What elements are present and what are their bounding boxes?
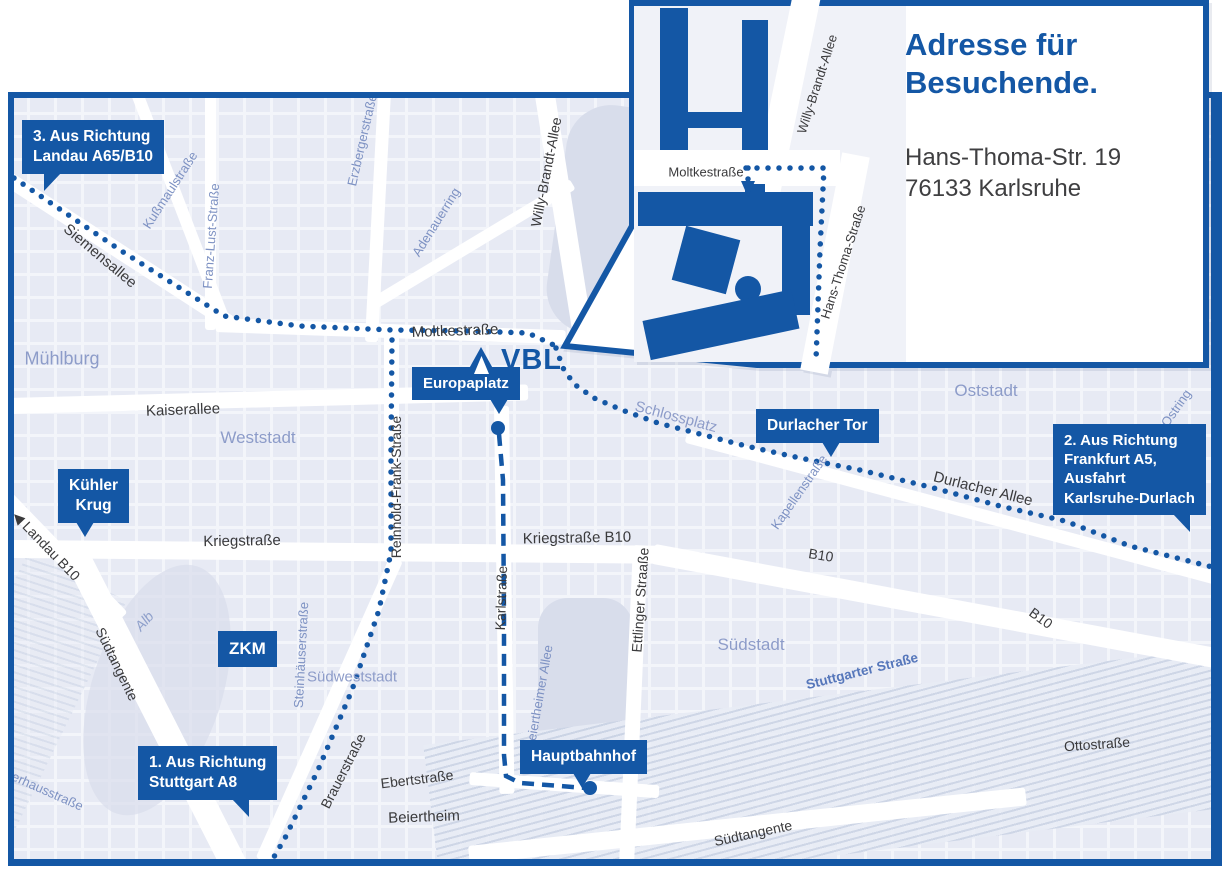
inset-title: Adresse für Besuchende. [905,26,1098,102]
visitor-address-inset: Adresse für Besuchende. Hans-Thoma-Str. … [560,0,1210,378]
label-suedweststadt: Südweststadt [307,669,397,686]
inset-address-line2: 76133 Karlsruhe [905,173,1121,204]
label-beiertheim: Beiertheim [388,807,460,826]
badge-richtung-frankfurt-line: Frankfurt A5, [1064,450,1195,469]
badge-richtung-frankfurt-line: 2. Aus Richtung [1064,431,1195,450]
badge-zkm-line: ZKM [229,638,266,660]
vbl-building-h-right [742,20,768,150]
vbl-logo-triangle-icon [466,347,497,375]
vbl-building-h-left [660,8,688,150]
badge-durlacher-tor-pointer [822,442,840,457]
badge-richtung-frankfurt: 2. Aus RichtungFrankfurt A5,AusfahrtKarl… [1053,424,1206,515]
badge-richtung-stuttgart-line: Stuttgart A8 [149,773,266,793]
badge-hauptbahnhof-line: Hauptbahnhof [531,747,636,767]
badge-richtung-landau-pointer [44,173,61,191]
badge-hauptbahnhof: Hauptbahnhof [520,740,647,774]
label-kriegstrasse-b10: Kriegstraße B10 [523,529,632,548]
inset-title-line2: Besuchende. [905,64,1098,102]
label-moltkestrasse: Moltkestraße [411,321,498,341]
inset-title-line1: Adresse für [905,26,1098,64]
badge-kuehler-krug-line: Krug [69,496,118,516]
label-inset-moltkestrasse: Moltkestraße [668,165,743,180]
label-weststadt: Weststadt [220,428,295,448]
badge-zkm: ZKM [218,631,277,667]
inset-address: Hans-Thoma-Str. 19 76133 Karlsruhe [905,142,1121,204]
label-kriegstrasse: Kriegstraße [203,532,281,550]
europaplatz-stop [491,421,505,435]
badge-kuehler-krug-pointer [76,522,94,537]
badge-richtung-stuttgart-pointer [232,799,249,817]
badge-richtung-stuttgart: 1. Aus RichtungStuttgart A8 [138,746,277,800]
badge-kuehler-krug: KühlerKrug [58,469,129,523]
badge-durlacher-tor: Durlacher Tor [756,409,879,443]
label-karlstrasse: Karlstraße [492,565,510,630]
badge-europaplatz-pointer [490,399,508,414]
badge-richtung-frankfurt-line: Ausfahrt [1064,469,1195,488]
route-hauptbahnhof-tram [499,434,586,788]
vbl-building-h-bar [660,112,768,128]
badge-durlacher-tor-line: Durlacher Tor [767,416,868,436]
karlsruhe-anfahrt-map: VBL SiemensalleeMoltkestraßeKaiseralleeK… [0,0,1230,874]
inset-address-line1: Hans-Thoma-Str. 19 [905,142,1121,173]
label-reinhold-frank: Reinhold-Frank-Straße [388,416,404,558]
badge-hauptbahnhof-pointer [573,773,591,788]
vbl-logo-text: VBL [501,344,562,377]
badge-richtung-landau: 3. Aus RichtungLandau A65/B10 [22,120,164,174]
badge-richtung-landau-line: 3. Aus Richtung [33,127,153,147]
label-suedstadt: Südstadt [717,635,784,655]
badge-richtung-frankfurt-line: Karlsruhe-Durlach [1064,489,1195,508]
vbl-logo: VBL [466,344,562,377]
badge-richtung-frankfurt-pointer [1173,514,1190,532]
badge-kuehler-krug-line: Kühler [69,476,118,496]
label-muehlburg: Mühlburg [24,349,99,370]
badge-richtung-stuttgart-line: 1. Aus Richtung [149,753,266,773]
label-kaiserallee: Kaiserallee [146,400,221,420]
label-oststadt: Oststadt [954,381,1017,401]
badge-richtung-landau-line: Landau A65/B10 [33,147,153,167]
